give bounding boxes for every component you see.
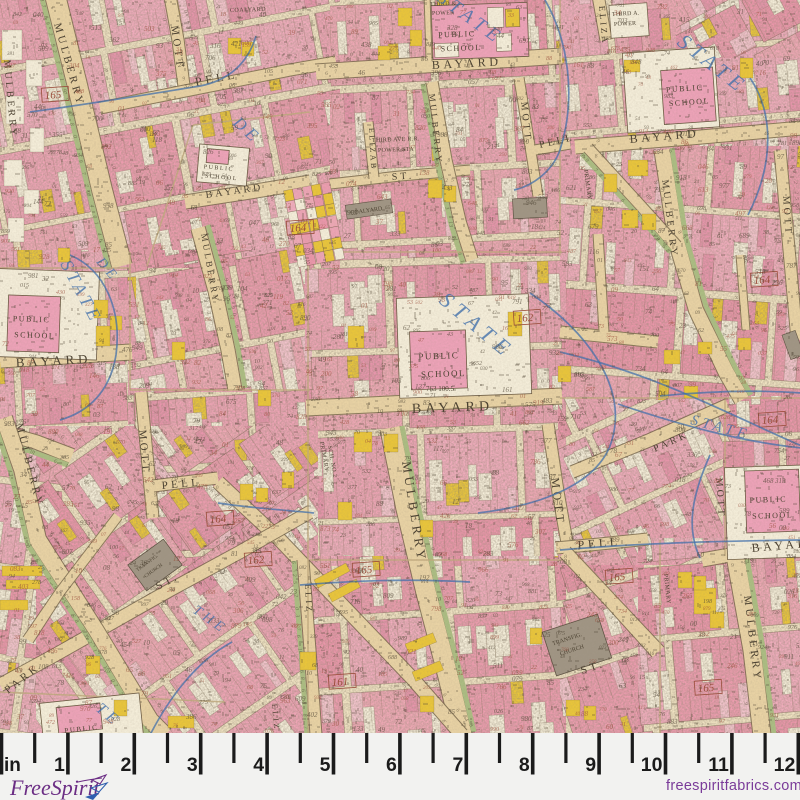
svg-text:7: 7 <box>452 754 463 776</box>
svg-text:freespiritfabrics.com: freespiritfabrics.com <box>666 778 800 794</box>
svg-text:6: 6 <box>386 754 397 776</box>
svg-text:5: 5 <box>320 754 331 776</box>
svg-text:10: 10 <box>641 754 663 776</box>
svg-text:4: 4 <box>253 754 264 776</box>
svg-text:2: 2 <box>120 754 131 776</box>
svg-text:1: 1 <box>54 754 65 776</box>
svg-text:in: in <box>4 755 21 776</box>
svg-text:9: 9 <box>585 754 596 776</box>
svg-text:3: 3 <box>187 754 198 776</box>
svg-text:12: 12 <box>774 754 796 776</box>
svg-text:FreeSpirit: FreeSpirit <box>9 775 100 800</box>
svg-text:11: 11 <box>708 754 729 776</box>
svg-text:8: 8 <box>519 754 530 776</box>
